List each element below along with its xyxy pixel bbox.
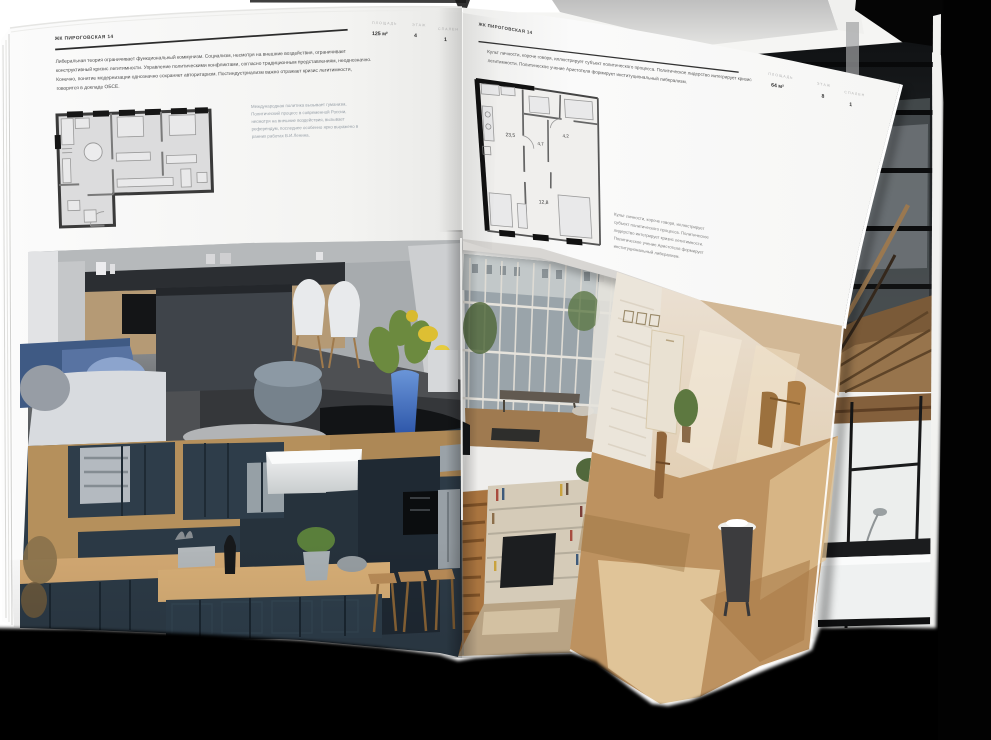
svg-text:8: 8 (822, 94, 825, 100)
svg-text:12,8: 12,8 (539, 199, 549, 206)
svg-text:ПЛОЩАДЬ: ПЛОЩАДЬ (372, 21, 398, 26)
svg-text:1: 1 (849, 102, 852, 108)
svg-text:23,5: 23,5 (505, 132, 515, 139)
svg-text:4: 4 (414, 33, 417, 39)
svg-text:4,2: 4,2 (562, 133, 569, 139)
svg-text:125 м²: 125 м² (372, 31, 388, 37)
svg-text:4,7: 4,7 (537, 141, 544, 147)
svg-text:ЭТАЖ: ЭТАЖ (412, 23, 426, 27)
